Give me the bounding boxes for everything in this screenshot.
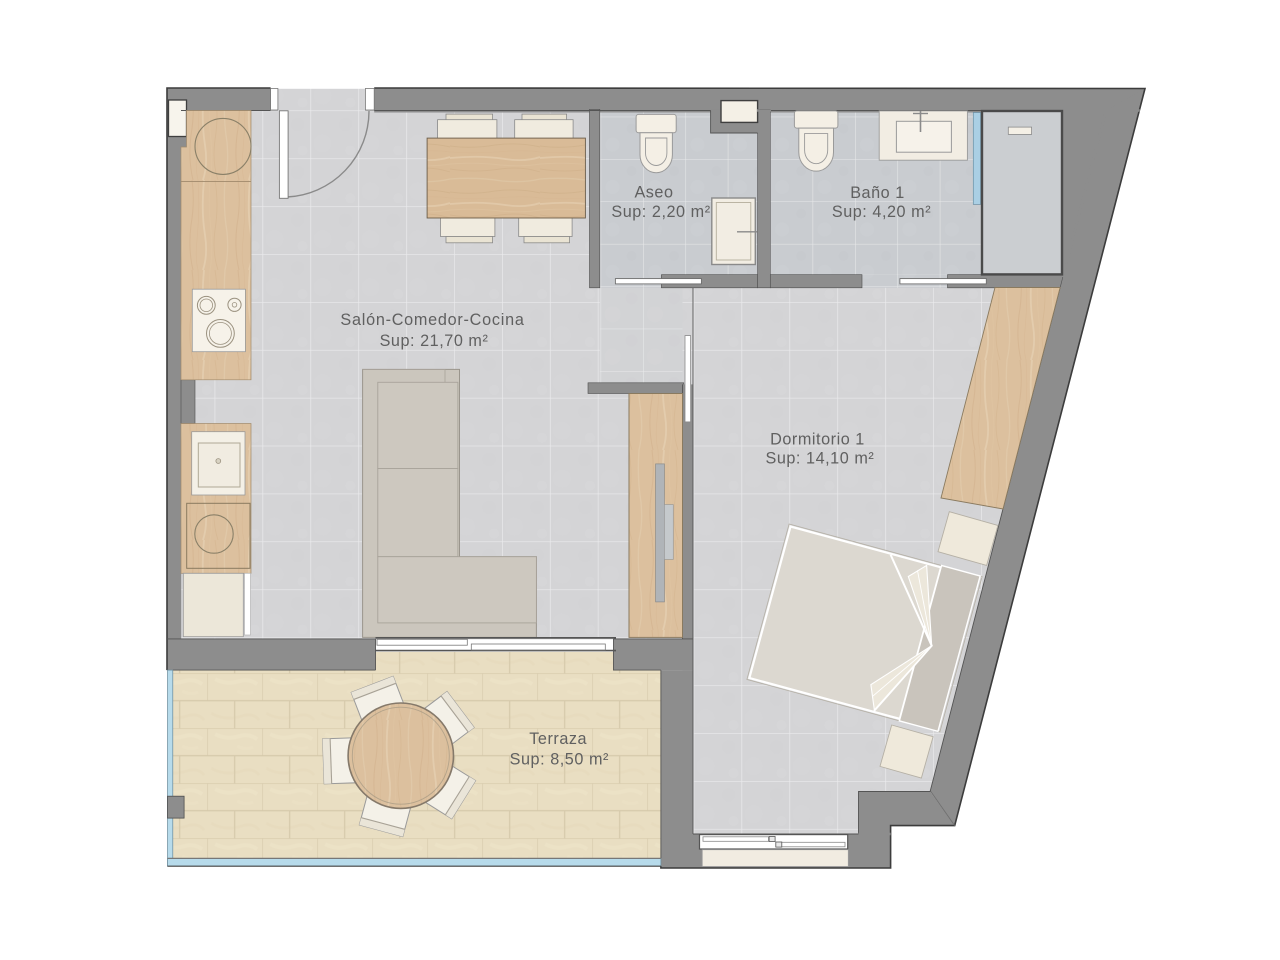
svg-text:Aseo: Aseo: [634, 184, 673, 202]
svg-text:Sup: 14,10 m²: Sup: 14,10 m²: [765, 450, 874, 468]
svg-text:Dormitorio 1: Dormitorio 1: [770, 431, 865, 449]
svg-text:Sup: 4,20 m²: Sup: 4,20 m²: [832, 203, 931, 221]
svg-text:Terraza: Terraza: [529, 730, 587, 748]
svg-text:Salón-Comedor-Cocina: Salón-Comedor-Cocina: [340, 311, 524, 329]
svg-text:Sup: 21,70 m²: Sup: 21,70 m²: [380, 332, 489, 350]
svg-text:Baño 1: Baño 1: [850, 184, 905, 202]
svg-text:Sup: 2,20 m²: Sup: 2,20 m²: [611, 203, 710, 221]
svg-text:Sup: 8,50 m²: Sup: 8,50 m²: [510, 751, 609, 769]
